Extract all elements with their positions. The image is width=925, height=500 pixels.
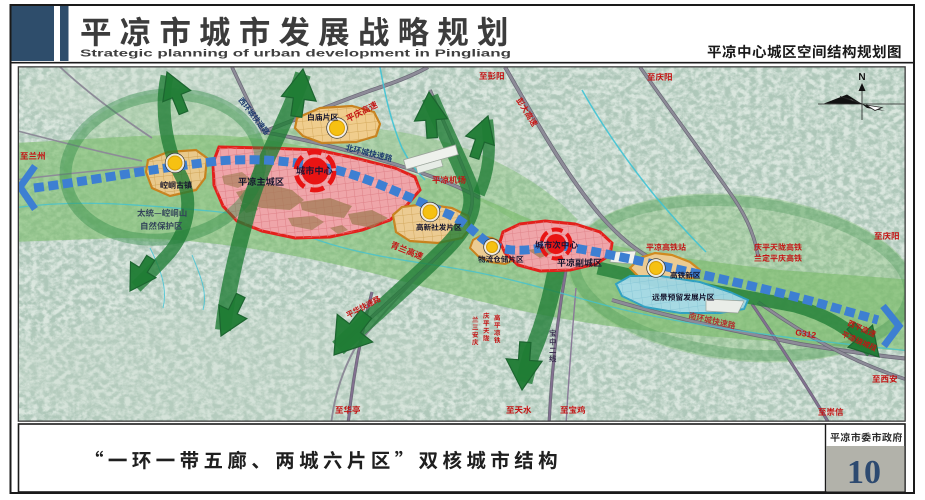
svg-text:Strategic planning of urban de: Strategic planning of urban development … [80,48,511,60]
svg-text:10: 10 [847,454,881,491]
